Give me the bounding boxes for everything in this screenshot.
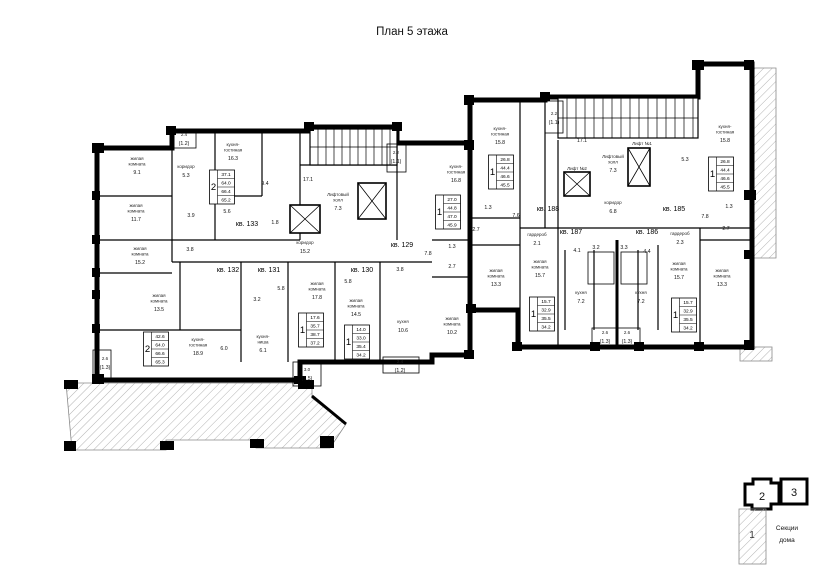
room-label: 1.3 <box>448 244 455 250</box>
area-value: 46.6 <box>720 176 730 182</box>
area-value: 27.0 <box>447 197 457 203</box>
area-value: 34.2 <box>356 353 366 359</box>
apartment-number: кв. 129 <box>391 242 413 249</box>
room-label: 7.8 <box>701 214 708 220</box>
area-value: 45.5 <box>720 185 730 191</box>
area-value: 45.9 <box>447 223 457 229</box>
apartment-number: кв. 188 <box>537 206 559 213</box>
room-label: Лифт №1 <box>632 141 652 146</box>
room-label: 9.4 <box>261 181 268 187</box>
area-value: 35.4 <box>356 344 366 350</box>
room-count: 1 <box>346 337 351 348</box>
room-label: 5.6 <box>223 209 230 215</box>
area-value: 37.2 <box>310 341 320 347</box>
apartment-number: кв. 133 <box>236 221 258 228</box>
area-value: 46.6 <box>500 174 510 180</box>
area-value: 65.3 <box>155 360 165 366</box>
room-count: 1 <box>300 325 305 336</box>
area-value: 34.2 <box>541 325 551 331</box>
room-label: 2.7 <box>722 226 729 232</box>
room-label: 6.0 <box>220 346 227 352</box>
adjacent-section-1-hatch <box>66 383 346 450</box>
area-value: 44.8 <box>447 206 457 212</box>
room-label: 4.4 <box>643 249 650 255</box>
area-value: 44.4 <box>500 166 510 172</box>
staircase-section-2 <box>310 129 397 165</box>
area-value: 45.5 <box>500 183 510 189</box>
apartment-number: кв. 131 <box>258 267 280 274</box>
area-value: 15.7 <box>541 299 551 305</box>
page-title: План 5 этажа <box>376 26 448 38</box>
area-value: 64.0 <box>221 181 231 187</box>
legend-section-1-label: 1 <box>749 530 755 541</box>
apartment-number: кв. 132 <box>217 267 239 274</box>
apartment-number: кв. 130 <box>351 267 373 274</box>
room-count: 1 <box>673 310 678 321</box>
room-label: 2.7 <box>448 264 455 270</box>
room-label: 2.7 <box>472 227 479 233</box>
room-count: 1 <box>710 169 715 180</box>
room-count: 1 <box>437 207 442 218</box>
room-label: 5.8 <box>277 286 284 292</box>
room-label: 7.6 <box>512 213 519 219</box>
area-value: 32.9 <box>683 309 693 315</box>
area-value: 32.9 <box>541 308 551 314</box>
room-label: 1.8 <box>271 220 278 226</box>
area-value: 66.4 <box>221 189 231 195</box>
floor-plan-svg: План 5 этажа <box>0 0 828 585</box>
area-value: 17.6 <box>310 315 320 321</box>
room-label: 7.8 <box>424 251 431 257</box>
room-label: 17.1 <box>303 177 313 183</box>
legend-section-3-label: 3 <box>791 487 797 499</box>
area-value: 44.4 <box>720 168 730 174</box>
room-label: 1.3 <box>725 204 732 210</box>
room-label: 3.0(1.5) <box>302 367 313 382</box>
room-label: 5.8 <box>344 279 351 285</box>
area-value: 38.7 <box>310 332 320 338</box>
area-value: 37.1 <box>221 172 231 178</box>
room-label: 5.3 <box>681 157 688 163</box>
room-label: Лифт №2 <box>567 166 587 171</box>
room-label: 3.8 <box>186 247 193 253</box>
room-count: 1 <box>531 309 536 320</box>
area-value: 33.0 <box>356 336 366 342</box>
area-value: 65.2 <box>221 198 231 204</box>
area-value: 35.5 <box>683 317 693 323</box>
area-value: 26.8 <box>500 157 510 163</box>
adjacent-right-hatch <box>754 68 776 258</box>
staircase-section-3 <box>558 98 698 138</box>
room-count: 2 <box>145 344 150 355</box>
area-value: 47.0 <box>447 214 457 220</box>
area-value: 64.0 <box>155 343 165 349</box>
room-label: 3.2 <box>253 297 260 303</box>
apartment-number: кв. 185 <box>663 206 685 213</box>
room-label: 3.3 <box>620 245 627 251</box>
room-count: 1 <box>490 167 495 178</box>
area-value: 14.0 <box>356 327 366 333</box>
area-value: 35.7 <box>310 324 320 330</box>
apartment-number: кв. 186 <box>636 229 658 236</box>
room-label: 1.3 <box>484 205 491 211</box>
room-label: 3.8 <box>396 267 403 273</box>
room-label: 4.1 <box>573 248 580 254</box>
area-value: 35.5 <box>541 316 551 322</box>
area-value: 15.7 <box>683 300 693 306</box>
room-label: 17.1 <box>577 138 587 144</box>
area-value: 42.6 <box>155 334 165 340</box>
room-label: 3.2 <box>592 245 599 251</box>
area-value: 66.6 <box>155 351 165 357</box>
area-value: 26.8 <box>720 159 730 165</box>
legend-caption-line1: Секции <box>776 525 799 532</box>
area-value: 34.2 <box>683 326 693 332</box>
legend-caption-line2: дома <box>779 537 795 544</box>
section-legend: 2 3 1 Секции дома <box>739 479 807 564</box>
apartment-number: кв. 187 <box>560 229 582 236</box>
room-count: 2 <box>211 182 216 193</box>
legend-section-2-label: 2 <box>759 491 765 503</box>
room-label: 3.9 <box>187 213 194 219</box>
